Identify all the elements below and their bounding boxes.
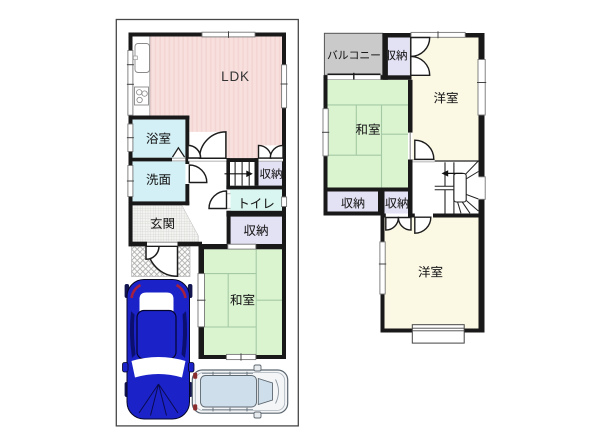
svg-text:浴室: 浴室	[146, 128, 171, 147]
svg-text:玄関: 玄関	[150, 213, 175, 232]
svg-text:収納: 収納	[385, 48, 408, 64]
svg-text:和室: 和室	[230, 290, 255, 309]
svg-text:トイレ: トイレ	[237, 193, 275, 212]
svg-text:洗面: 洗面	[146, 169, 171, 188]
svg-text:LDK: LDK	[221, 65, 250, 85]
svg-text:和室: 和室	[355, 119, 380, 138]
svg-text:収納: 収納	[260, 166, 283, 182]
svg-text:バルコニー: バルコニー	[327, 47, 381, 63]
svg-text:収納: 収納	[341, 195, 365, 212]
svg-text:洋室: 洋室	[418, 262, 443, 281]
svg-text:収納: 収納	[243, 220, 268, 239]
svg-text:収納: 収納	[385, 195, 409, 212]
svg-text:洋室: 洋室	[433, 88, 458, 107]
